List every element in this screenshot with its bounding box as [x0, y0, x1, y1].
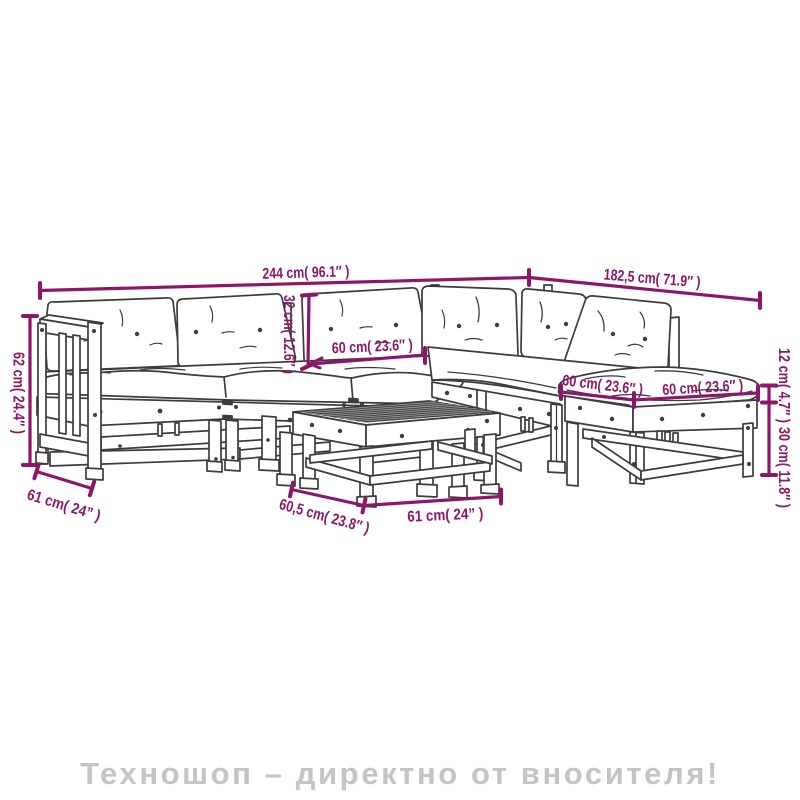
svg-text:12 cm( 4.7″ ): 12 cm( 4.7″ ) [775, 348, 792, 423]
svg-text:30 cm( 11.8″ ): 30 cm( 11.8″ ) [775, 427, 792, 508]
svg-text:244 cm( 96.1″ ): 244 cm( 96.1″ ) [262, 263, 349, 282]
svg-text:32 cm( 12.6″ ): 32 cm( 12.6″ ) [280, 295, 297, 374]
svg-text:62 cm( 24.4″ ): 62 cm( 24.4″ ) [10, 352, 27, 434]
svg-text:61 cm( 24” ): 61 cm( 24” ) [407, 505, 484, 525]
svg-text:Техношоп – директно от вносите: Техношоп – директно от вносителя! [80, 756, 720, 791]
